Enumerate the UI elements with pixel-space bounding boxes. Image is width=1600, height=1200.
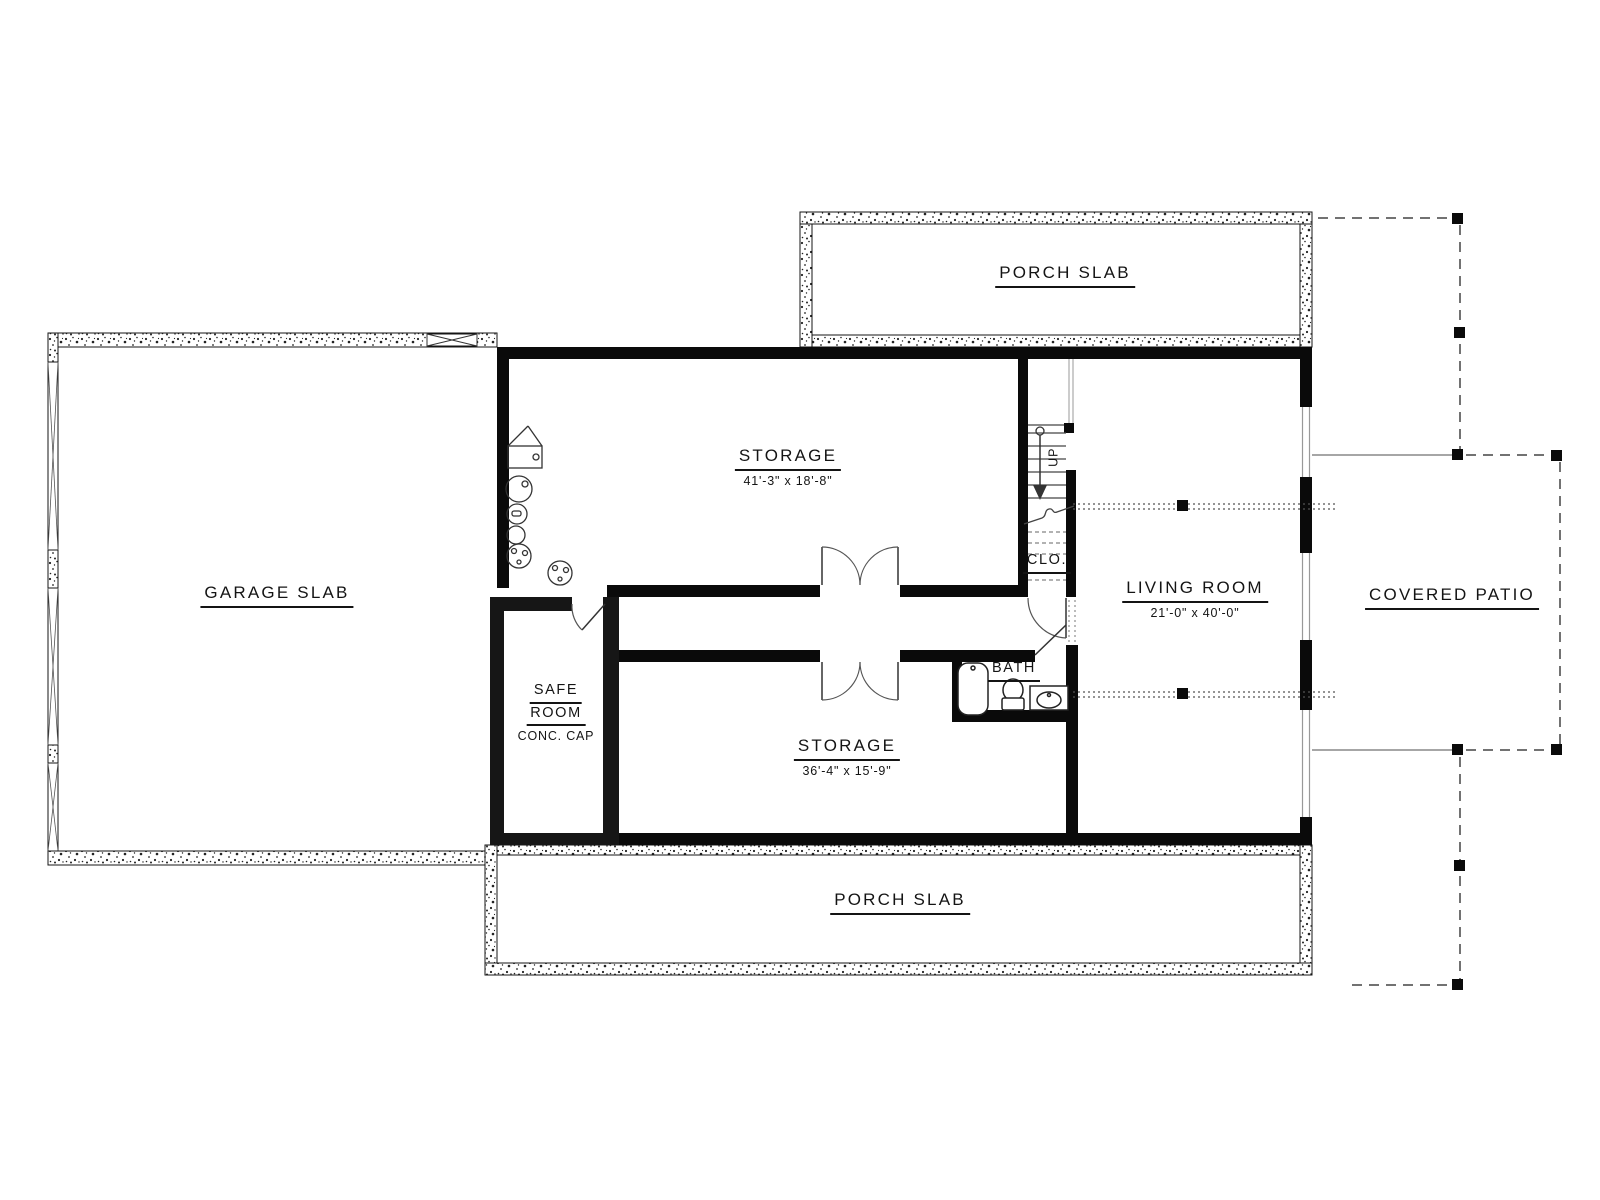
label-bath: BATH [988,660,1040,682]
tank-small [507,526,525,544]
label-garage-slab: GARAGE SLAB [200,583,353,608]
south-wall [600,833,1312,845]
label-storage-lower: STORAGE 36'-4" x 15'-9" [794,736,900,778]
east-wall-seg-1 [1300,347,1312,407]
closet-door [1028,598,1066,638]
mechanical-equipment [506,426,572,585]
tub-faucet [971,666,975,670]
safe-room-door [572,604,605,630]
double-door-upper [822,547,898,585]
floor-plan: PORCH SLAB GARAGE SLAB STORAGE 41'-3" x … [0,0,1600,1200]
label-porch-slab-bottom: PORCH SLAB [830,890,970,915]
label-covered-patio: COVERED PATIO [1365,585,1539,610]
sink-drain [1048,694,1051,697]
equipment-box [508,446,542,468]
opening-jamb-dotted [1069,600,1075,645]
label-living-room: LIVING ROOM 21'-0" x 40'-0" [1122,578,1268,620]
deck-outline-top-right [1318,213,1465,449]
stair-east-wall [1066,470,1076,597]
hall-top-wall-b [900,585,1028,597]
east-wall-seg-3 [1300,640,1312,710]
label-stairs-up: UP [1047,448,1061,467]
stair-newel-post [1064,423,1074,433]
label-safe-room: SAFE ROOM CONC. CAP [518,682,595,744]
bathtub [958,663,988,715]
east-wall-seg-2 [1300,477,1312,553]
stair-up-arrow [1033,427,1047,500]
pressure-tank [507,504,527,524]
label-closet: CLO. [1023,552,1071,574]
water-heater [506,476,532,502]
storage-upper-dimensions: 41'-3" x 18'-8" [735,474,841,488]
hall-top-wall-a [607,585,820,597]
living-room-west-wall [1066,645,1078,833]
deck-outline-bottom-right [1352,757,1465,990]
label-porch-slab-top: PORCH SLAB [995,263,1135,288]
storage-lower-dimensions: 36'-4" x 15'-9" [794,764,900,778]
bath-door [1035,625,1066,655]
beam-post-lower [1177,688,1188,699]
east-wall-seg-4 [1300,817,1312,845]
north-wall [497,347,1312,359]
double-door-lower [822,662,898,700]
toilet-tank [1002,698,1024,710]
beam-post-upper [1177,500,1188,511]
label-storage-upper: STORAGE 41'-3" x 18'-8" [735,446,841,488]
hall-bottom-wall-a [612,650,820,662]
living-room-dimensions: 21'-0" x 40'-0" [1122,606,1268,620]
east-wall-windows [1300,407,1312,817]
safe-room-note: CONC. CAP [518,729,595,743]
